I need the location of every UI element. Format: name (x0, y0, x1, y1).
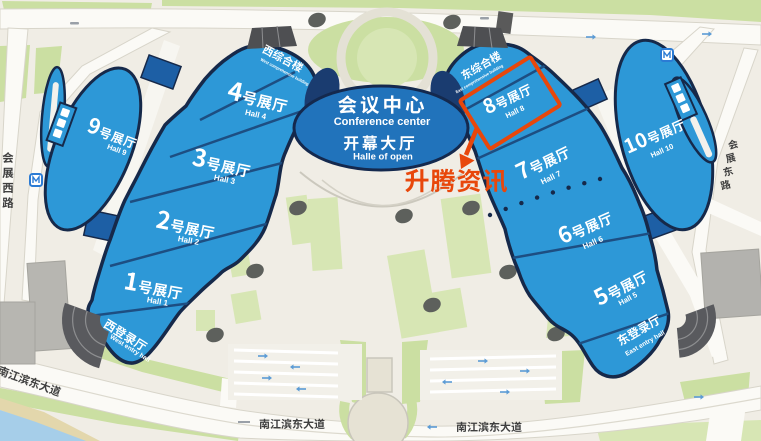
svg-text:Conference center: Conference center (334, 116, 431, 128)
svg-text:Halle of open: Halle of open (353, 152, 413, 163)
